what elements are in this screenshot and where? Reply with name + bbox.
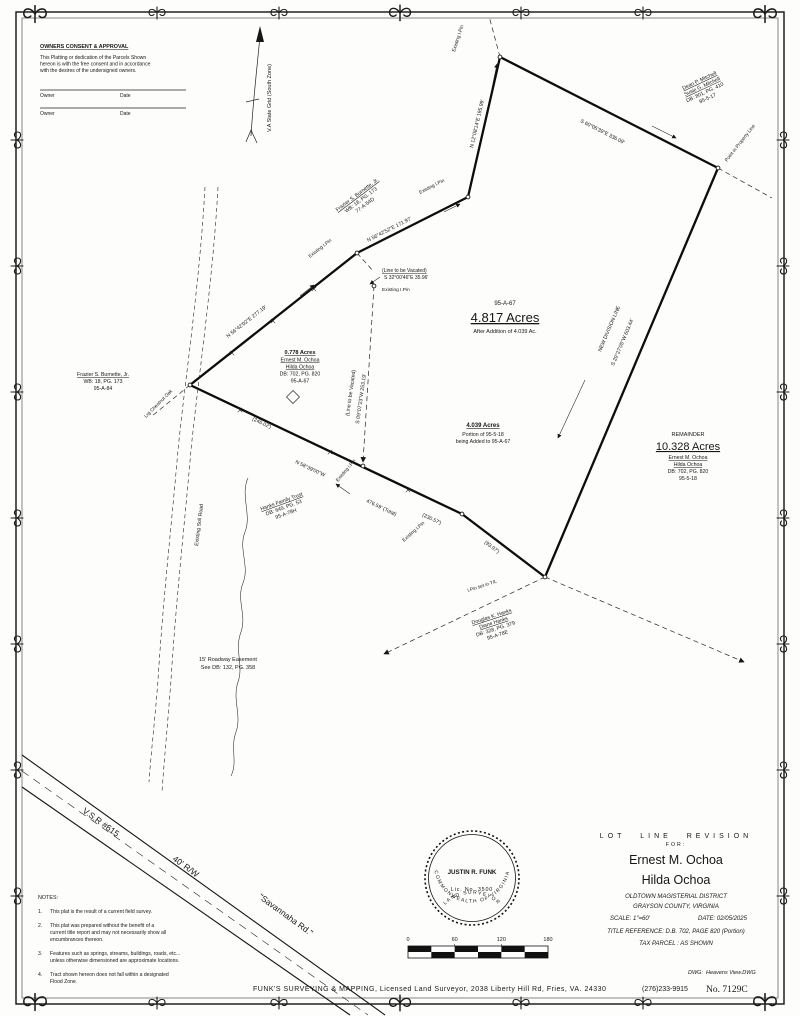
owner-label: Owner	[40, 93, 55, 99]
bearing-arrow	[336, 484, 350, 494]
soil-road-edge	[149, 187, 205, 782]
footer: DWG: Heavens View.DWG FUNK'S SURVEYING &…	[253, 970, 756, 995]
corner-pin	[355, 251, 359, 255]
vacated-line-short	[357, 253, 374, 272]
note-number: 2.	[38, 923, 42, 929]
plat-for-label: FOR:	[666, 842, 686, 848]
bearing-arrow	[558, 380, 585, 438]
parcel-burnette-top: Frazier S. Burnette, Jr. WB: 18, PG. 173…	[335, 177, 388, 223]
tax-parcel-id: 95-A-67	[494, 301, 516, 307]
surveyor-seal: COMMONWEALTH OF VIRGINIA JUSTIN R. FUNK …	[425, 831, 519, 925]
note-text: current title report and may not necessa…	[50, 930, 166, 936]
corner-pin	[361, 464, 365, 468]
road-name-label: "Savannaha Rd."	[257, 892, 315, 938]
pin-label: Existing I.Pin	[401, 520, 426, 543]
drawing-number: No. 7129C	[706, 985, 748, 995]
note-text: This plat is the result of a current fie…	[50, 909, 152, 915]
corner-pin	[543, 575, 547, 579]
parcel-burnette-left: Frazier S. Burnette, Jr. WB: 18, PG. 173…	[77, 372, 129, 392]
note-text: unless otherwise dimensioned are approxi…	[50, 958, 179, 964]
survey-plat-page: OWNERS CONSENT & APPROVAL This Platting …	[0, 0, 800, 1016]
bearing-arrow	[300, 285, 314, 296]
tree-line-right	[545, 577, 744, 662]
note-number: 1.	[38, 909, 42, 915]
county-label: GRAYSON COUNTY, VIRGINIA	[633, 904, 719, 910]
north-arrow-shaft	[251, 36, 260, 136]
scale-tick-label: 180	[543, 937, 552, 943]
remainder-label: REMAINDER	[671, 432, 704, 438]
acreage: 4.039 Acres	[466, 423, 500, 429]
notes-title: NOTES:	[38, 895, 58, 901]
tax-parcel-note: TAX PARCEL : AS SHOWN	[639, 941, 713, 947]
pin-label: Existing I.Pin	[418, 178, 446, 196]
owners-consent-block: OWNERS CONSENT & APPROVAL This Platting …	[40, 44, 186, 117]
acreage: 0.778 Acres	[285, 350, 316, 356]
dwg-label: DWG:	[688, 970, 703, 976]
pin-label: Existing I.Pin	[308, 238, 334, 260]
bearing-labels: S 60°05'39"E 336.09' N 12°08'14"E 195.99…	[226, 64, 676, 555]
scale-tick-label: 0	[406, 937, 409, 943]
firm-phone: (276)233-9915	[642, 986, 688, 993]
parcel-remainder: REMAINDER 10.328 Acres Ernest M. Ochoa H…	[656, 432, 721, 482]
parcel-ochoa-small: 0.778 Acres Ernest M. Ochoa Hilda Ochoa …	[280, 350, 321, 385]
north-arrow-head-icon	[256, 26, 264, 42]
date-label: Date	[120, 93, 131, 99]
easement-label: 15' Roadway Easement	[199, 657, 257, 663]
plat-drawing: OWNERS CONSENT & APPROVAL This Platting …	[0, 0, 800, 1016]
stream-line	[231, 478, 248, 776]
consent-body-line: This Platting or dedication of the Parce…	[40, 55, 146, 61]
date-label: Date	[120, 111, 131, 117]
owner-name: Ernest M. Ochoa	[669, 455, 708, 461]
bearing-label: N 56°42'52"E 171.97'	[366, 216, 413, 244]
acreage-note: Portion of 95-5-18	[462, 432, 504, 438]
corner-pin	[188, 383, 192, 387]
vacated-note: (Line to be Vacated)	[382, 268, 427, 274]
corner-pin	[466, 195, 470, 199]
firm-info: FUNK'S SURVEYING & MAPPING, Licensed Lan…	[253, 986, 606, 993]
soil-road-edge	[162, 187, 218, 792]
consent-body-line: hereon is with the free consent and in a…	[40, 62, 151, 68]
bearing-label: N 56°42'02"E 277.19'	[226, 305, 268, 340]
deed-ref: WB: 18, PG. 173	[84, 379, 123, 385]
vacated-note: (Line to be Vacated)	[345, 369, 357, 416]
easement-ref: See DB: 132, PG. 358	[201, 665, 255, 671]
scale-tick-label: 120	[497, 937, 506, 943]
bearing-arrow	[370, 277, 380, 284]
pin-label: Existing I.Pin	[382, 287, 410, 293]
parcel-douglas-hanks: Douglas K. Hanks Diane Hanks DB: 328, PG…	[471, 608, 519, 645]
soil-road-label: Existing Soil Road	[194, 504, 205, 547]
parcel-labels: Dean P. Mitchell Susie G. Mitchell DB: 8…	[77, 70, 728, 645]
tree-line-left	[384, 577, 545, 654]
corner-pin	[716, 166, 720, 170]
note-text: Features such as springs, streams, build…	[50, 951, 180, 957]
north-arrow-crossbar	[246, 99, 259, 102]
seal-inner-ring	[429, 835, 516, 922]
acreage-note: After Addition of 4.039 Ac.	[473, 329, 537, 335]
client-name: Hilda Ochoa	[642, 873, 711, 887]
note-text: Tract shown hereon does not fall within …	[50, 972, 169, 978]
tax-parcel-id: 95-5-18	[679, 476, 697, 482]
boundary-extension	[489, 16, 500, 57]
note-number: 3.	[38, 951, 42, 957]
road-rw-label: 40' R/W	[171, 854, 201, 880]
title-block: LOT LINE REVISION FOR: Ernest M. Ochoa H…	[600, 833, 752, 947]
date-label: DATE: 02/05/2025	[698, 916, 748, 922]
acreage: 4.817 Acres	[471, 310, 540, 325]
parcel-main: 95-A-67 4.817 Acres After Addition of 4.…	[471, 301, 540, 335]
building-symbol	[287, 391, 300, 404]
consent-title: OWNERS CONSENT & APPROVAL	[40, 44, 129, 50]
scale-bar: 0 60 120 180	[406, 937, 552, 958]
parcel-mitchell: Dean P. Mitchell Susie G. Mitchell DB: 8…	[680, 70, 728, 110]
district-label: OLDTOWN MAGISTERIAL DISTRICT	[625, 894, 728, 900]
distance-label: 476.59' (Total)	[365, 498, 397, 518]
client-name: Ernest M. Ochoa	[629, 853, 723, 867]
bearing-label: N 58°39'00"W	[294, 459, 326, 478]
pin-label: I.Pin set in T/L	[467, 579, 498, 594]
corner-pin	[498, 55, 502, 59]
corner-pin	[372, 284, 376, 288]
acreage: 10.328 Acres	[656, 441, 721, 453]
owner-name: Hilda Ochoa	[674, 462, 703, 468]
seal-surveyor-name: JUSTIN R. FUNK	[448, 869, 497, 876]
parcel-hanks-family: Hanks Family Trust DB: 649, PG. 53 95-A-…	[260, 491, 309, 524]
boundary-extension	[152, 385, 190, 416]
note-number: 4.	[38, 972, 42, 978]
acreage-note: being Added to 95-A-67	[456, 439, 511, 445]
owner-name: Hilda Ochoa	[286, 365, 315, 371]
corner-pin	[460, 512, 464, 516]
parcel-addition: 4.039 Acres Portion of 95-5-18 being Add…	[456, 423, 511, 445]
north-arrow-label: V.A State Grid (South Zone)	[267, 64, 273, 132]
deed-ref: DB: 702, PG. 820	[668, 469, 709, 475]
plat-title: LOT LINE REVISION	[600, 833, 752, 840]
bearing-label: N 12°08'14"E 195.99'	[469, 99, 486, 148]
scale-tick-label: 60	[452, 937, 458, 943]
note-text: encumbrances thereon.	[50, 937, 104, 943]
owner-name: Ernest M. Ochoa	[281, 358, 320, 364]
pin-label: Existing I.Pin	[335, 458, 358, 483]
deed-ref: DB: 702, PG. 820	[280, 372, 321, 378]
note-text: Flood Zone.	[50, 979, 77, 985]
main-boundary	[190, 57, 718, 577]
scale-label: SCALE: 1"=60'	[610, 916, 651, 922]
note-text: This plat was prepared without the benef…	[50, 923, 154, 929]
feature-labels: 15' Roadway Easement See DB: 132, PG. 35…	[81, 504, 315, 938]
boundary-extension	[718, 168, 772, 198]
pin-label: Point in Property Line	[724, 123, 757, 163]
pin-label: Lrg Chestnut Oak	[143, 388, 174, 419]
pin-label: Existing I.Pin	[451, 24, 465, 53]
dwg-filename: Heavens View.DWG	[706, 970, 756, 976]
bearing-label: S 32°00'46"E 35.96'	[384, 275, 428, 281]
title-reference: TITLE REFERENCE: D.B. 702, PAGE 820 (Por…	[607, 929, 745, 935]
notes-block: NOTES: 1. This plat is the result of a c…	[38, 895, 180, 985]
owner-name: Frazier S. Burnette, Jr.	[77, 372, 129, 378]
owner-label: Owner	[40, 111, 55, 117]
tax-parcel-id: 95-A-67	[291, 379, 310, 385]
consent-body-line: with the desires of the undersigned owne…	[40, 68, 136, 74]
north-arrow: V.A State Grid (South Zone)	[246, 26, 273, 143]
tax-parcel-id: 95-A-84	[94, 386, 113, 392]
bearing-label: S 60°05'39"E 336.09'	[579, 118, 625, 146]
site-features	[22, 187, 385, 1015]
